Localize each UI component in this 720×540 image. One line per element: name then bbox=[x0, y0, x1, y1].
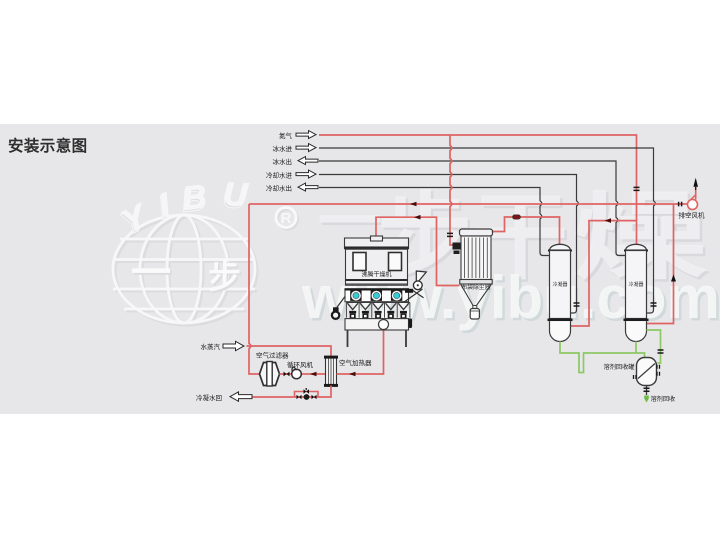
svg-text:安装示意图: 安装示意图 bbox=[8, 136, 88, 155]
svg-text:水蒸汽: 水蒸汽 bbox=[201, 342, 221, 351]
svg-text:溶剂回收: 溶剂回收 bbox=[651, 395, 676, 403]
svg-text:冷凝器: 冷凝器 bbox=[628, 281, 643, 288]
svg-text:一: 一 bbox=[131, 251, 171, 295]
svg-text:循环风机: 循环风机 bbox=[287, 360, 314, 369]
svg-text:沸腾干燥机: 沸腾干燥机 bbox=[361, 271, 391, 279]
svg-text:溶剂回收罐: 溶剂回收罐 bbox=[604, 363, 635, 371]
svg-text:冷凝水回: 冷凝水回 bbox=[196, 393, 222, 402]
svg-text:空气加热器: 空气加热器 bbox=[339, 358, 372, 367]
svg-text:冷却水出: 冷却水出 bbox=[266, 183, 292, 192]
svg-text:冷凝器: 冷凝器 bbox=[552, 281, 567, 288]
svg-text:步: 步 bbox=[208, 258, 241, 295]
svg-text:空气过滤器: 空气过滤器 bbox=[256, 351, 289, 360]
svg-text:氮气: 氮气 bbox=[279, 131, 293, 140]
svg-text:冰水出: 冰水出 bbox=[273, 157, 293, 166]
svg-text:排空风机: 排空风机 bbox=[679, 211, 706, 220]
svg-text:R: R bbox=[281, 210, 292, 227]
svg-text:冰水进: 冰水进 bbox=[273, 144, 293, 153]
svg-text:U: U bbox=[223, 175, 250, 213]
svg-text:B: B bbox=[180, 177, 208, 217]
svg-text:冷却水进: 冷却水进 bbox=[266, 170, 293, 179]
svg-text:布袋除尘器: 布袋除尘器 bbox=[462, 283, 491, 291]
